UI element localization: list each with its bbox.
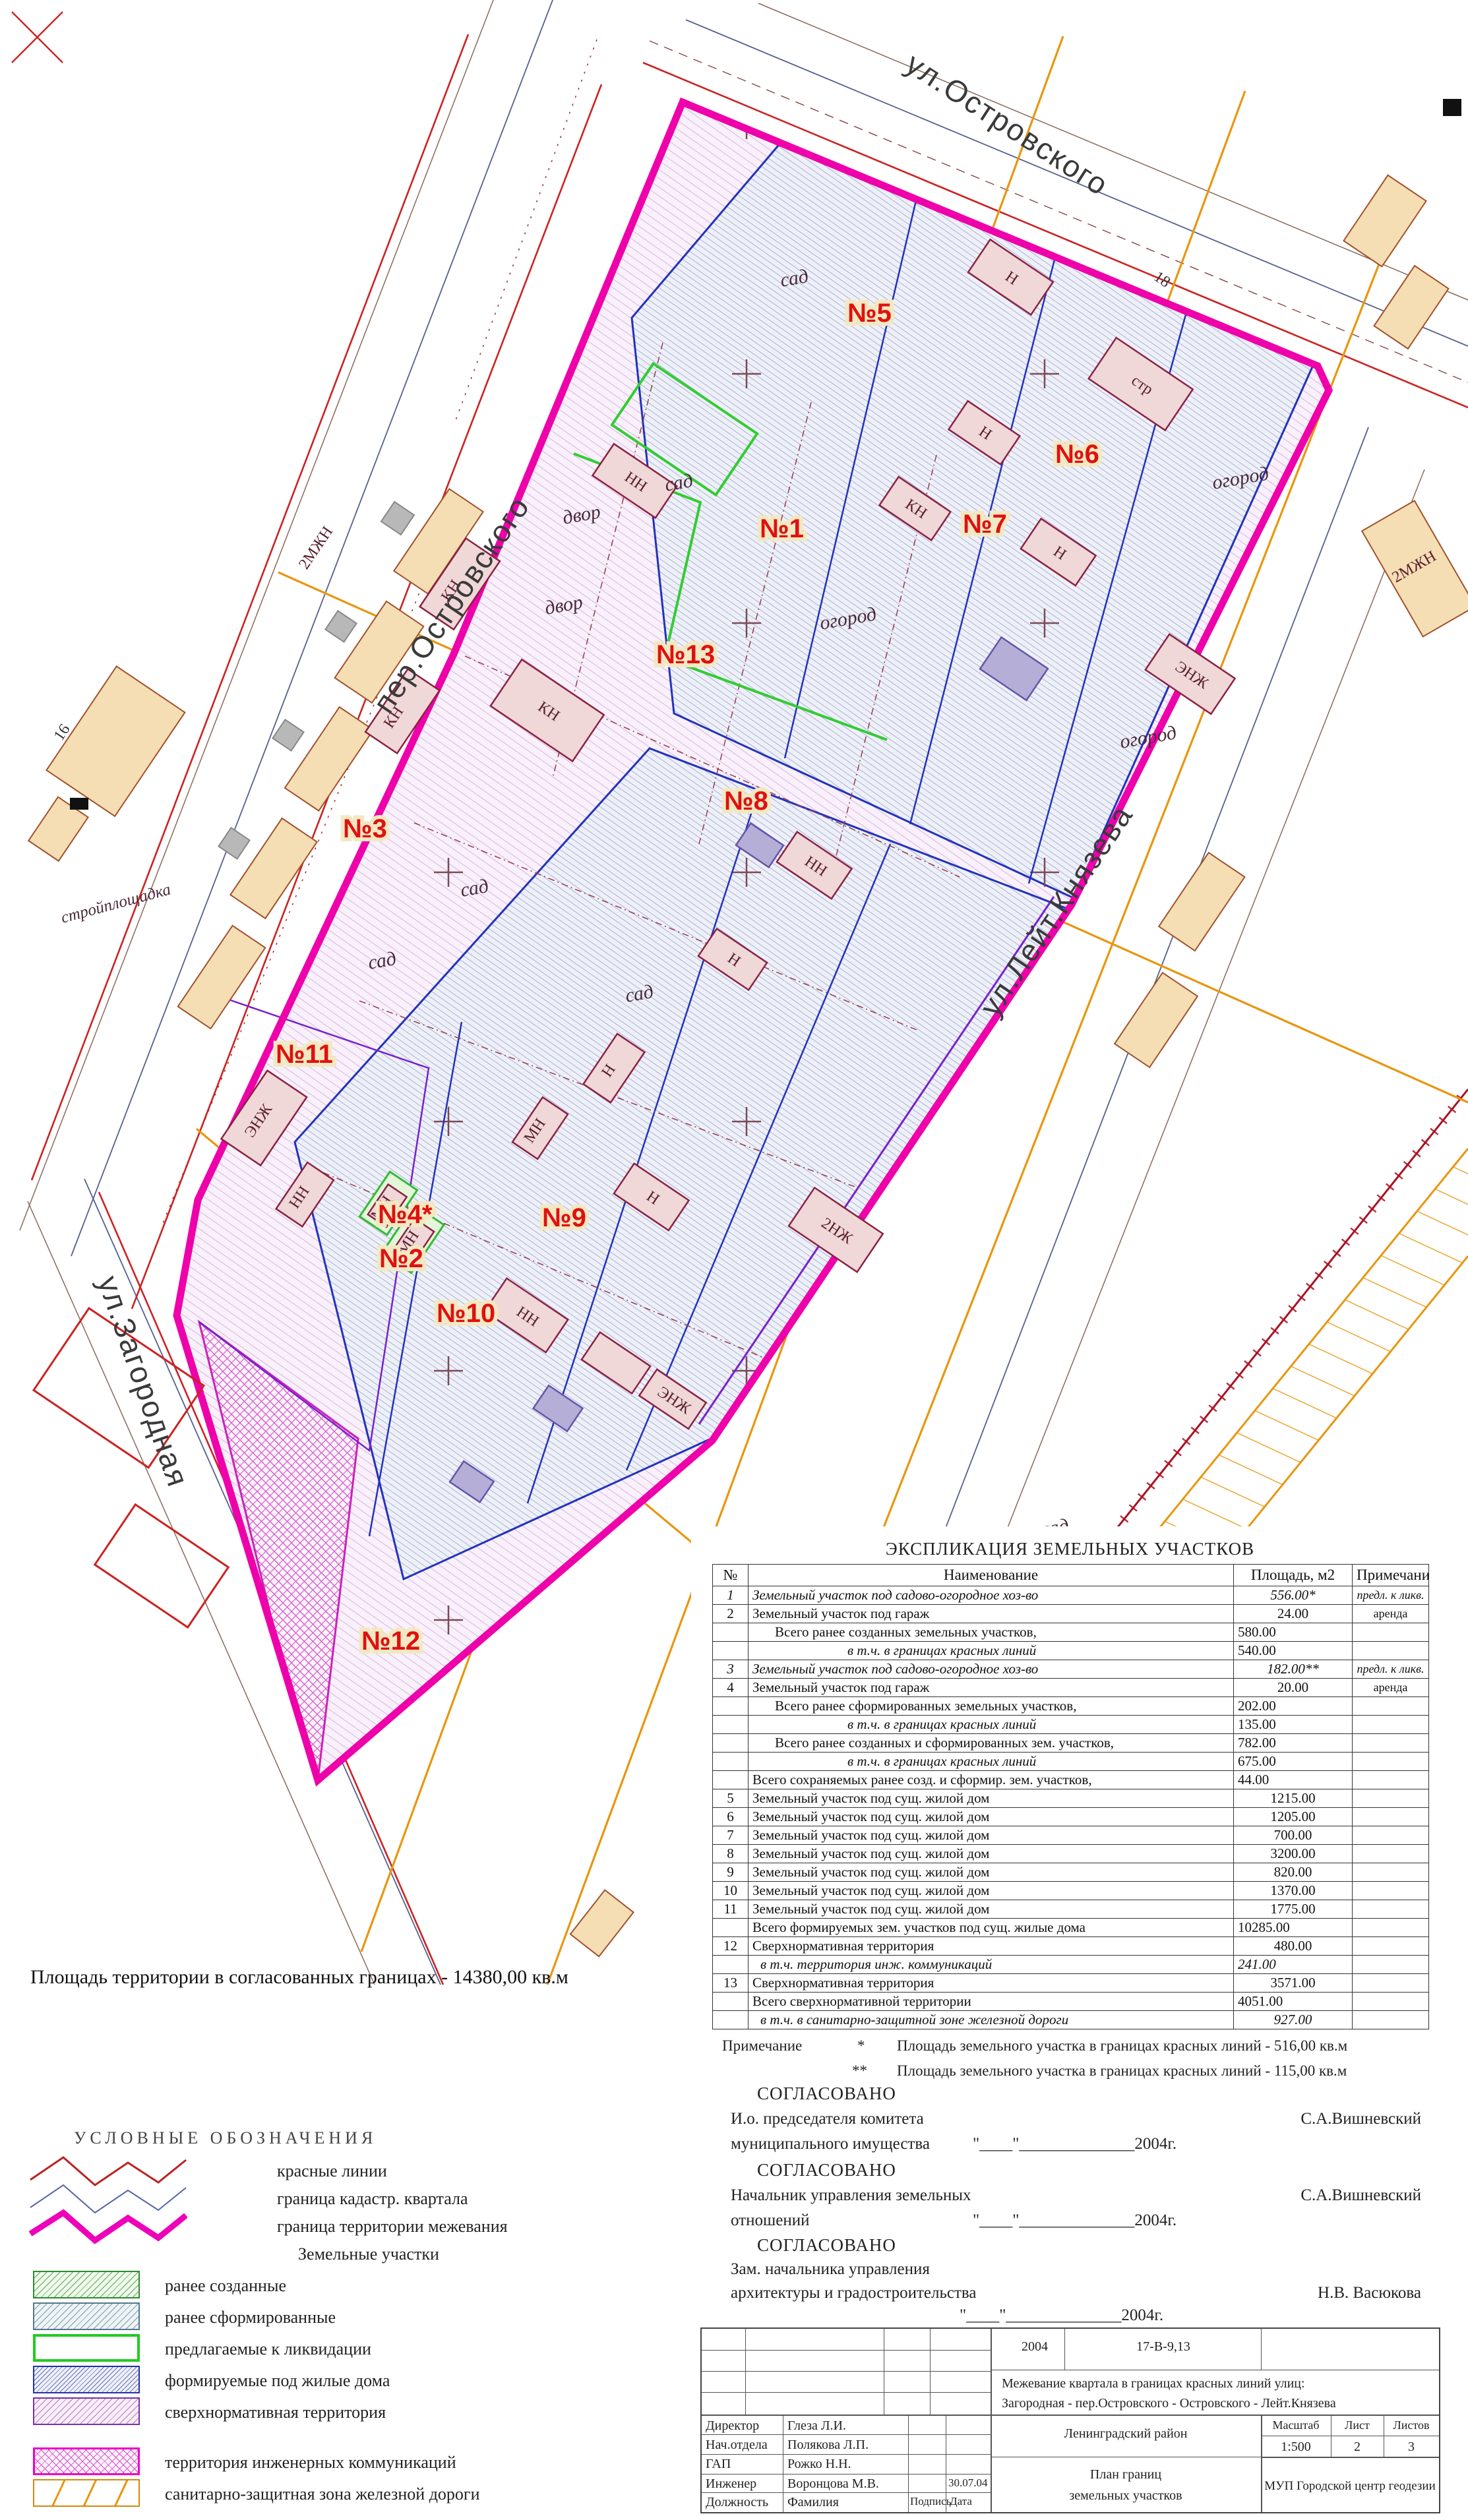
tb-plan-1: План границ (991, 2467, 1261, 2482)
cell-name: Всего сохраняемых ранее созд. и сформир.… (749, 1771, 1234, 1789)
cell-name: Всего ранее созданных и сформированных з… (749, 1734, 1234, 1753)
table-row: 3Земельный участок под садово-огородное … (713, 1660, 1429, 1679)
territory-area-note: Площадь территории в согласованных грани… (30, 1966, 568, 1989)
cell-note (1353, 1882, 1429, 1900)
tb-sheets-label: Листов (1384, 2418, 1439, 2432)
table-row: Всего формируемых зем. участков под сущ.… (713, 1919, 1429, 1937)
cell-name: Всего ранее созданных земельных участков… (749, 1623, 1234, 1642)
cell-num: 6 (713, 1808, 749, 1826)
cell-area: 1775.00 (1234, 1900, 1353, 1919)
cell-name: Сверхнормативная территория (749, 1974, 1234, 1993)
cell-num: 1 (713, 1586, 749, 1605)
approval-name: Н.В. Васюкова (1210, 2284, 1421, 2302)
table-row: Всего ранее созданных и сформированных з… (713, 1734, 1429, 1753)
tb-subject-2: Загородная - пер.Островского - Островско… (1002, 2396, 1430, 2411)
cell-num (713, 1716, 749, 1734)
cell-area: 135.00 (1234, 1716, 1353, 1734)
table-row: Всего сохраняемых ранее созд. и сформир.… (713, 1771, 1429, 1789)
cell-note (1353, 1734, 1429, 1753)
cell-num: 3 (713, 1660, 749, 1679)
table-row: 10Земельный участок под сущ. жилой дом13… (713, 1882, 1429, 1900)
table-row: в т.ч. в санитарно-защитной зоне железно… (713, 2011, 1429, 2029)
cell-area: 241.00 (1234, 1956, 1353, 1974)
cell-area: 3200.00 (1234, 1845, 1353, 1863)
cell-num: 4 (713, 1679, 749, 1697)
cell-area: 927.00 (1234, 2011, 1353, 2029)
col-note: Примечание (1353, 1565, 1429, 1586)
parcel-label-7: №7 (963, 510, 1007, 539)
table-row: 2Земельный участок под гараж24.00аренда (713, 1605, 1429, 1623)
cell-num: 8 (713, 1845, 749, 1863)
tb-staff-role: Директор (706, 2418, 759, 2434)
cell-name: Всего ранее сформированных земельных уча… (749, 1697, 1234, 1716)
approval-role: И.о. председателя комитета (731, 2110, 924, 2128)
cell-note (1353, 1900, 1429, 1919)
tb-scale-value: 1:500 (1261, 2440, 1331, 2455)
cell-name: Земельный участок под сущ. жилой дом (749, 1863, 1234, 1882)
legend-boundary-sample (29, 2207, 187, 2244)
cell-name: Земельный участок под сущ. жилой дом (749, 1900, 1234, 1919)
tb-subject-1: Межевание квартала в границах красных ли… (1002, 2376, 1430, 2391)
parcel-label-1: №1 (760, 514, 804, 543)
parcel-label-9: №9 (542, 1203, 586, 1232)
approval-heading: СОГЛАСОВАНО (757, 2160, 896, 2180)
parcel-label-6: №6 (1055, 440, 1099, 469)
terrain-label-stroy: стройплощадка (59, 880, 173, 926)
building-mark: 2МЖН (295, 524, 336, 572)
tb-staff-sign: Подпись (910, 2495, 951, 2508)
cell-num (713, 1697, 749, 1716)
title-block: 2004 17-В-9,13 Межевание квартала в гран… (700, 2327, 1440, 2513)
table-row: в т.ч. территория инж. коммуникаций241.0… (713, 1956, 1429, 1974)
cell-area: 556.00* (1234, 1586, 1353, 1605)
table-row: Всего ранее сформированных земельных уча… (713, 1697, 1429, 1716)
tb-staff-name: Фамилия (787, 2495, 839, 2510)
approval-role: Зам. начальника управления (731, 2260, 930, 2279)
table-row: Всего ранее созданных земельных участков… (713, 1623, 1429, 1642)
cell-num (713, 1919, 749, 1937)
approval-role: Начальник управления земельных (731, 2186, 971, 2205)
cell-note: аренда (1353, 1679, 1429, 1697)
cell-note (1353, 1789, 1429, 1808)
cell-name: Земельный участок под сущ. жилой дом (749, 1845, 1234, 1863)
note-mark-1: * (857, 2037, 865, 2055)
cell-note (1353, 1826, 1429, 1845)
legend-label: санитарно-защитная зона железной дороги (165, 2484, 480, 2504)
cell-area: 24.00 (1234, 1605, 1353, 1623)
table-row: 6Земельный участок под сущ. жилой дом120… (713, 1808, 1429, 1826)
parcel-label-2: №2 (379, 1244, 423, 1273)
tb-sheets-value: 3 (1384, 2440, 1439, 2455)
cell-area: 10285.00 (1234, 1919, 1353, 1937)
cell-name: Земельный участок под сущ. жилой дом (749, 1826, 1234, 1845)
cell-area: 4051.00 (1234, 1993, 1353, 2011)
parcel-label-13: №13 (656, 640, 715, 669)
legend-swatch-earlier-created (33, 2271, 140, 2298)
cell-name: Земельный участок под садово-огородное х… (749, 1660, 1234, 1679)
cell-note (1353, 1753, 1429, 1771)
cell-note (1353, 1642, 1429, 1660)
cell-name: Всего формируемых зем. участков под сущ.… (749, 1919, 1234, 1937)
explication-table: № Наименование Площадь, м2 Примечание 1З… (712, 1564, 1429, 2029)
tb-staff-role: Должность (706, 2495, 768, 2510)
cell-name: Земельный участок под садово-огородное х… (749, 1586, 1234, 1605)
parcel-label-11: №11 (276, 1040, 333, 1069)
tb-district: Ленинградский район (991, 2426, 1261, 2442)
table-row: в т.ч. в границах красных линий135.00 (713, 1716, 1429, 1734)
cell-area: 480.00 (1234, 1937, 1353, 1956)
boundary-zigzag (30, 2213, 186, 2240)
cell-num: 13 (713, 1974, 749, 1993)
table-row: 4Земельный участок под гараж20.00аренда (713, 1679, 1429, 1697)
cell-area: 20.00 (1234, 1679, 1353, 1697)
parcel-label-10: №10 (437, 1299, 495, 1328)
table-row: 7Земельный участок под сущ. жилой дом700… (713, 1826, 1429, 1845)
cell-num (713, 1753, 749, 1771)
cell-area: 782.00 (1234, 1734, 1353, 1753)
cell-name: Всего сверхнормативной территории (749, 1993, 1234, 2011)
cell-num (713, 1623, 749, 1642)
cell-num: 7 (713, 1826, 749, 1845)
legend-label: граница территории межевания (277, 2217, 508, 2236)
cell-note (1353, 1808, 1429, 1826)
cell-name: в т.ч. территория инж. коммуникаций (749, 1956, 1234, 1974)
cell-num: 5 (713, 1789, 749, 1808)
note-label: Примечание (722, 2037, 802, 2055)
table-row: 13Сверхнормативная территория3571.00 (713, 1974, 1429, 1993)
parcel-label-8: №8 (724, 787, 768, 816)
cell-name: Земельный участок под гараж (749, 1605, 1234, 1623)
table-title: ЭКСПЛИКАЦИЯ ЗЕМЕЛЬНЫХ УЧАСТКОВ (712, 1539, 1428, 1559)
cell-area: 540.00 (1234, 1642, 1353, 1660)
legend-swatch-excess-territory (33, 2397, 140, 2425)
cell-area: 675.00 (1234, 1753, 1353, 1771)
tb-staff-date: 30.07.04 (948, 2476, 988, 2490)
tb-staff-role: ГАП (706, 2457, 731, 2472)
cell-name: Сверхнормативная территория (749, 1937, 1234, 1956)
legend-label: территория инженерных коммуникаций (165, 2453, 456, 2473)
cell-note (1353, 1716, 1429, 1734)
approval-date: "____"______________2004г. (973, 2211, 1177, 2230)
table-row: 9Земельный участок под сущ. жилой дом820… (713, 1863, 1429, 1882)
parcel-label-4: №4* (378, 1200, 433, 1229)
cell-note (1353, 1623, 1429, 1642)
table-row: 11Земельный участок под сущ. жилой дом17… (713, 1900, 1429, 1919)
legend-title: УСЛОВНЫЕ ОБОЗНАЧЕНИЯ (74, 2128, 377, 2148)
tb-scale-label: Масштаб (1261, 2418, 1331, 2432)
parcel-label-5: №5 (847, 299, 892, 328)
approval-date: "____"______________2004г. (960, 2306, 1163, 2325)
cell-area: 1370.00 (1234, 1882, 1353, 1900)
cell-note (1353, 2011, 1429, 2029)
cell-name: в т.ч. в границах красных линий (749, 1753, 1234, 1771)
cell-num (713, 1993, 749, 2011)
cell-num (713, 1734, 749, 1753)
approval-name: С.А.Вишневский (1210, 2110, 1421, 2128)
col-area: Площадь, м2 (1234, 1565, 1353, 1586)
table-row: в т.ч. в границах красных линий540.00 (713, 1642, 1429, 1660)
cell-name: Земельный участок под сущ. жилой дом (749, 1808, 1234, 1826)
cell-num: 11 (713, 1900, 749, 1919)
cell-num (713, 1642, 749, 1660)
cell-note (1353, 1993, 1429, 2011)
note-mark-2: ** (852, 2062, 867, 2080)
tb-staff-name: Полякова Л.П. (787, 2438, 869, 2453)
cell-area: 182.00** (1234, 1660, 1353, 1679)
approval-heading: СОГЛАСОВАНО (757, 2235, 896, 2256)
col-num: № (713, 1565, 749, 1586)
cell-area: 1205.00 (1234, 1808, 1353, 1826)
tb-staff-role: Инженер (706, 2476, 756, 2492)
cell-note (1353, 1937, 1429, 1956)
cell-area: 820.00 (1234, 1863, 1353, 1882)
cell-name: Земельный участок под гараж (749, 1679, 1234, 1697)
cell-area: 1215.00 (1234, 1789, 1353, 1808)
tb-staff-role: Нач.отдела (706, 2438, 768, 2453)
table-row: Всего сверхнормативной территории4051.00 (713, 1993, 1429, 2011)
approval-heading: СОГЛАСОВАНО (757, 2084, 896, 2104)
cell-note: предл. к ликв. (1353, 1660, 1429, 1679)
legend-swatch-formed-housing (33, 2366, 140, 2393)
legend-label: предлагаемые к ликвидации (165, 2339, 371, 2359)
legend-label: красные линии (277, 2161, 387, 2181)
tb-staff-name: Воронцова М.В. (787, 2476, 879, 2492)
parcel-label-3: №3 (343, 814, 387, 843)
table-header-row: № Наименование Площадь, м2 Примечание (713, 1565, 1429, 1586)
legend-subtitle: Земельные участки (298, 2244, 439, 2264)
approval-name: С.А.Вишневский (1210, 2186, 1421, 2205)
cadastral-plan-sheet: КН КН КН НН Н стр Н КН Н ЭНЖ НН Н Н МН Н… (0, 0, 1468, 2520)
cell-area: 3571.00 (1234, 1974, 1353, 1993)
cell-name: в т.ч. в границах красных линий (749, 1716, 1234, 1734)
cell-num: 10 (713, 1882, 749, 1900)
tb-year: 2004 (1005, 2339, 1064, 2355)
table-row: 8Земельный участок под сущ. жилой дом320… (713, 1845, 1429, 1863)
cell-area: 580.00 (1234, 1623, 1353, 1642)
tb-staff-name: Глеза Л.И. (787, 2418, 846, 2434)
cell-name: Земельный участок под сущ. жилой дом (749, 1789, 1234, 1808)
house-number: 18 (1151, 268, 1173, 291)
cell-note: предл. к ликв. (1353, 1586, 1429, 1605)
tb-organization: МУП Городской центр геодезии (1261, 2479, 1439, 2494)
cell-note (1353, 1863, 1429, 1882)
legend-swatch-railway-zone (33, 2479, 140, 2507)
tb-sheet-value: 2 (1331, 2440, 1384, 2455)
cell-area: 700.00 (1234, 1826, 1353, 1845)
col-name: Наименование (749, 1565, 1234, 1586)
legend-swatch-earlier-formed (33, 2302, 140, 2330)
cell-note (1353, 1974, 1429, 1993)
cell-num (713, 1956, 749, 1974)
cell-note (1353, 1919, 1429, 1937)
cell-note (1353, 1771, 1429, 1789)
cell-note (1353, 1697, 1429, 1716)
tb-plan-2: земельных участков (991, 2488, 1261, 2504)
tb-staff-name: Рожко Н.Н. (787, 2457, 851, 2472)
cell-name: Земельный участок под сущ. жилой дом (749, 1882, 1234, 1900)
street-label-ostrovskogo: ул.Островского (900, 46, 1115, 202)
table-row: 5Земельный участок под сущ. жилой дом121… (713, 1789, 1429, 1808)
cell-num: 12 (713, 1937, 749, 1956)
cell-num: 9 (713, 1863, 749, 1882)
tb-sheet-label: Лист (1331, 2418, 1384, 2432)
legend-label: граница кадастр. квартала (277, 2189, 468, 2209)
cell-name: в т.ч. в санитарно-защитной зоне железно… (749, 2011, 1234, 2029)
cell-num (713, 2011, 749, 2029)
legend-label: ранее сформированные (165, 2308, 336, 2327)
table-row: в т.ч. в границах красных линий675.00 (713, 1753, 1429, 1771)
cell-area: 202.00 (1234, 1697, 1353, 1716)
cell-name: в т.ч. в границах красных линий (749, 1642, 1234, 1660)
approval-role: архитектуры и градостроительства (731, 2284, 976, 2302)
cell-note (1353, 1845, 1429, 1863)
legend-swatch-liquidation (33, 2334, 140, 2362)
note-text-1: Площадь земельного участка в границах кр… (897, 2037, 1347, 2055)
parcel-label-12: №12 (361, 1627, 420, 1656)
cell-note (1353, 1956, 1429, 1974)
legend-label: формируемые под жилые дома (165, 2371, 390, 2391)
legend-label: сверхнормативная территория (165, 2403, 386, 2422)
table-row: 12Сверхнормативная территория480.00 (713, 1937, 1429, 1956)
tb-staff-date-label: Дата (950, 2495, 972, 2508)
approval-role: муниципального имущества (731, 2135, 930, 2153)
tb-code: 17-В-9,13 (1071, 2339, 1256, 2355)
cell-num: 2 (713, 1605, 749, 1623)
note-text-2: Площадь земельного участка в границах кр… (897, 2062, 1347, 2080)
approval-date: "____"______________2004г. (973, 2135, 1177, 2153)
cell-num (713, 1771, 749, 1789)
approval-role: отношений (731, 2211, 809, 2230)
table-row: 1Земельный участок под садово-огородное … (713, 1586, 1429, 1605)
legend-label: ранее созданные (165, 2276, 286, 2296)
cell-note: аренда (1353, 1605, 1429, 1623)
legend-swatch-communications (33, 2447, 140, 2475)
cell-area: 44.00 (1234, 1771, 1353, 1789)
